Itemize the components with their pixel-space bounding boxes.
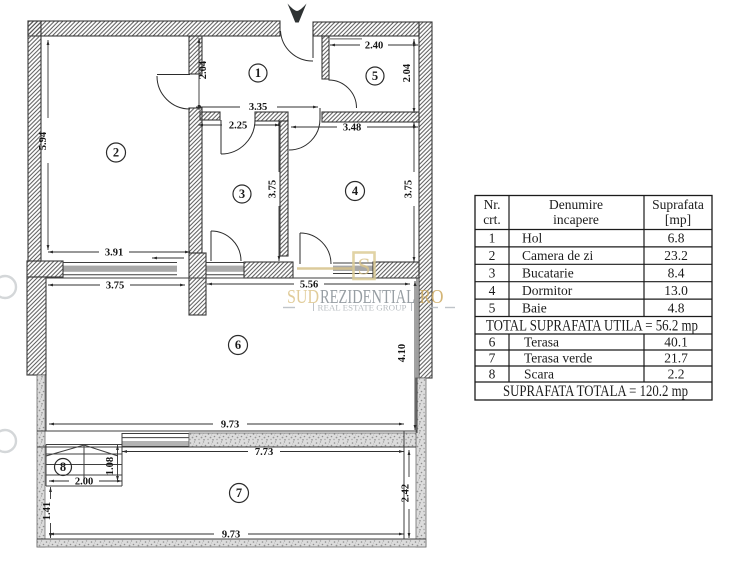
svg-text:9.73: 9.73 <box>221 420 239 431</box>
svg-text:2.40: 2.40 <box>365 41 383 52</box>
svg-text:Bucatarie: Bucatarie <box>522 266 574 281</box>
svg-text:2: 2 <box>113 146 119 160</box>
svg-text:4.8: 4.8 <box>668 301 685 316</box>
svg-text:7: 7 <box>236 486 242 500</box>
svg-text:6.8: 6.8 <box>668 231 685 246</box>
svg-text:[mp]: [mp] <box>665 212 691 227</box>
svg-text:21.7: 21.7 <box>664 351 688 366</box>
svg-text:9.73: 9.73 <box>222 530 240 541</box>
svg-text:S: S <box>357 255 370 281</box>
svg-text:4.10: 4.10 <box>397 344 408 362</box>
svg-text:5: 5 <box>489 301 496 316</box>
svg-text:Baie: Baie <box>522 301 547 316</box>
svg-text:3.91: 3.91 <box>105 248 123 259</box>
svg-text:40.1: 40.1 <box>664 335 688 350</box>
svg-text:3.35: 3.35 <box>249 102 267 113</box>
svg-text:7.73: 7.73 <box>255 447 273 458</box>
svg-text:5: 5 <box>372 69 378 83</box>
svg-text:SUD: SUD <box>287 286 319 308</box>
svg-text:Camera de zi: Camera de zi <box>522 248 593 263</box>
svg-text:Terasa: Terasa <box>524 335 559 350</box>
svg-text:13.0: 13.0 <box>664 283 688 298</box>
svg-text:2.42: 2.42 <box>401 484 412 502</box>
svg-text:3.75: 3.75 <box>268 180 279 198</box>
svg-text:8: 8 <box>489 367 496 382</box>
svg-text:2.2: 2.2 <box>668 367 685 382</box>
svg-text:Suprafata: Suprafata <box>652 197 704 212</box>
svg-text:Denumire: Denumire <box>549 197 603 212</box>
svg-text:2.04: 2.04 <box>198 60 209 79</box>
svg-text:3.75: 3.75 <box>404 180 415 198</box>
svg-text:7: 7 <box>489 351 496 366</box>
svg-text:2.00: 2.00 <box>75 477 93 488</box>
svg-text:TOTAL SUPRAFATA UTILA = 56.2 m: TOTAL SUPRAFATA UTILA = 56.2 mp <box>486 318 698 335</box>
svg-text:2.04: 2.04 <box>402 63 413 82</box>
svg-text:3.75: 3.75 <box>106 281 124 292</box>
svg-text:Hol: Hol <box>522 231 542 246</box>
svg-text:1: 1 <box>489 231 496 246</box>
svg-text:Dormitor: Dormitor <box>522 283 573 298</box>
svg-text:3: 3 <box>489 266 496 281</box>
svg-text:8: 8 <box>60 460 66 474</box>
svg-text:REAL ESTATE GROUP: REAL ESTATE GROUP <box>318 303 407 313</box>
svg-text:4: 4 <box>489 283 496 298</box>
svg-text:Terasa verde: Terasa verde <box>524 351 592 366</box>
svg-text:3: 3 <box>239 187 245 201</box>
svg-text:SUPRAFATA TOTALA = 120.2 mp: SUPRAFATA TOTALA = 120.2 mp <box>503 383 688 400</box>
svg-text:Scara: Scara <box>524 367 554 382</box>
svg-text:RO: RO <box>420 286 444 308</box>
svg-text:incapere: incapere <box>553 212 599 227</box>
svg-text:23.2: 23.2 <box>664 248 688 263</box>
svg-text:6: 6 <box>235 338 241 352</box>
svg-text:crt.: crt. <box>483 212 501 227</box>
svg-text:3.48: 3.48 <box>343 123 361 134</box>
svg-text:Nr.: Nr. <box>484 197 501 212</box>
svg-text:8.4: 8.4 <box>668 266 685 281</box>
svg-text:1: 1 <box>255 66 261 80</box>
svg-text:2: 2 <box>489 248 496 263</box>
svg-text:5.94: 5.94 <box>38 131 49 150</box>
svg-text:6: 6 <box>489 335 496 350</box>
svg-text:4: 4 <box>352 184 359 198</box>
svg-text:2.25: 2.25 <box>229 121 247 132</box>
svg-text:1.41: 1.41 <box>42 502 53 520</box>
svg-text:1.08: 1.08 <box>105 457 116 475</box>
